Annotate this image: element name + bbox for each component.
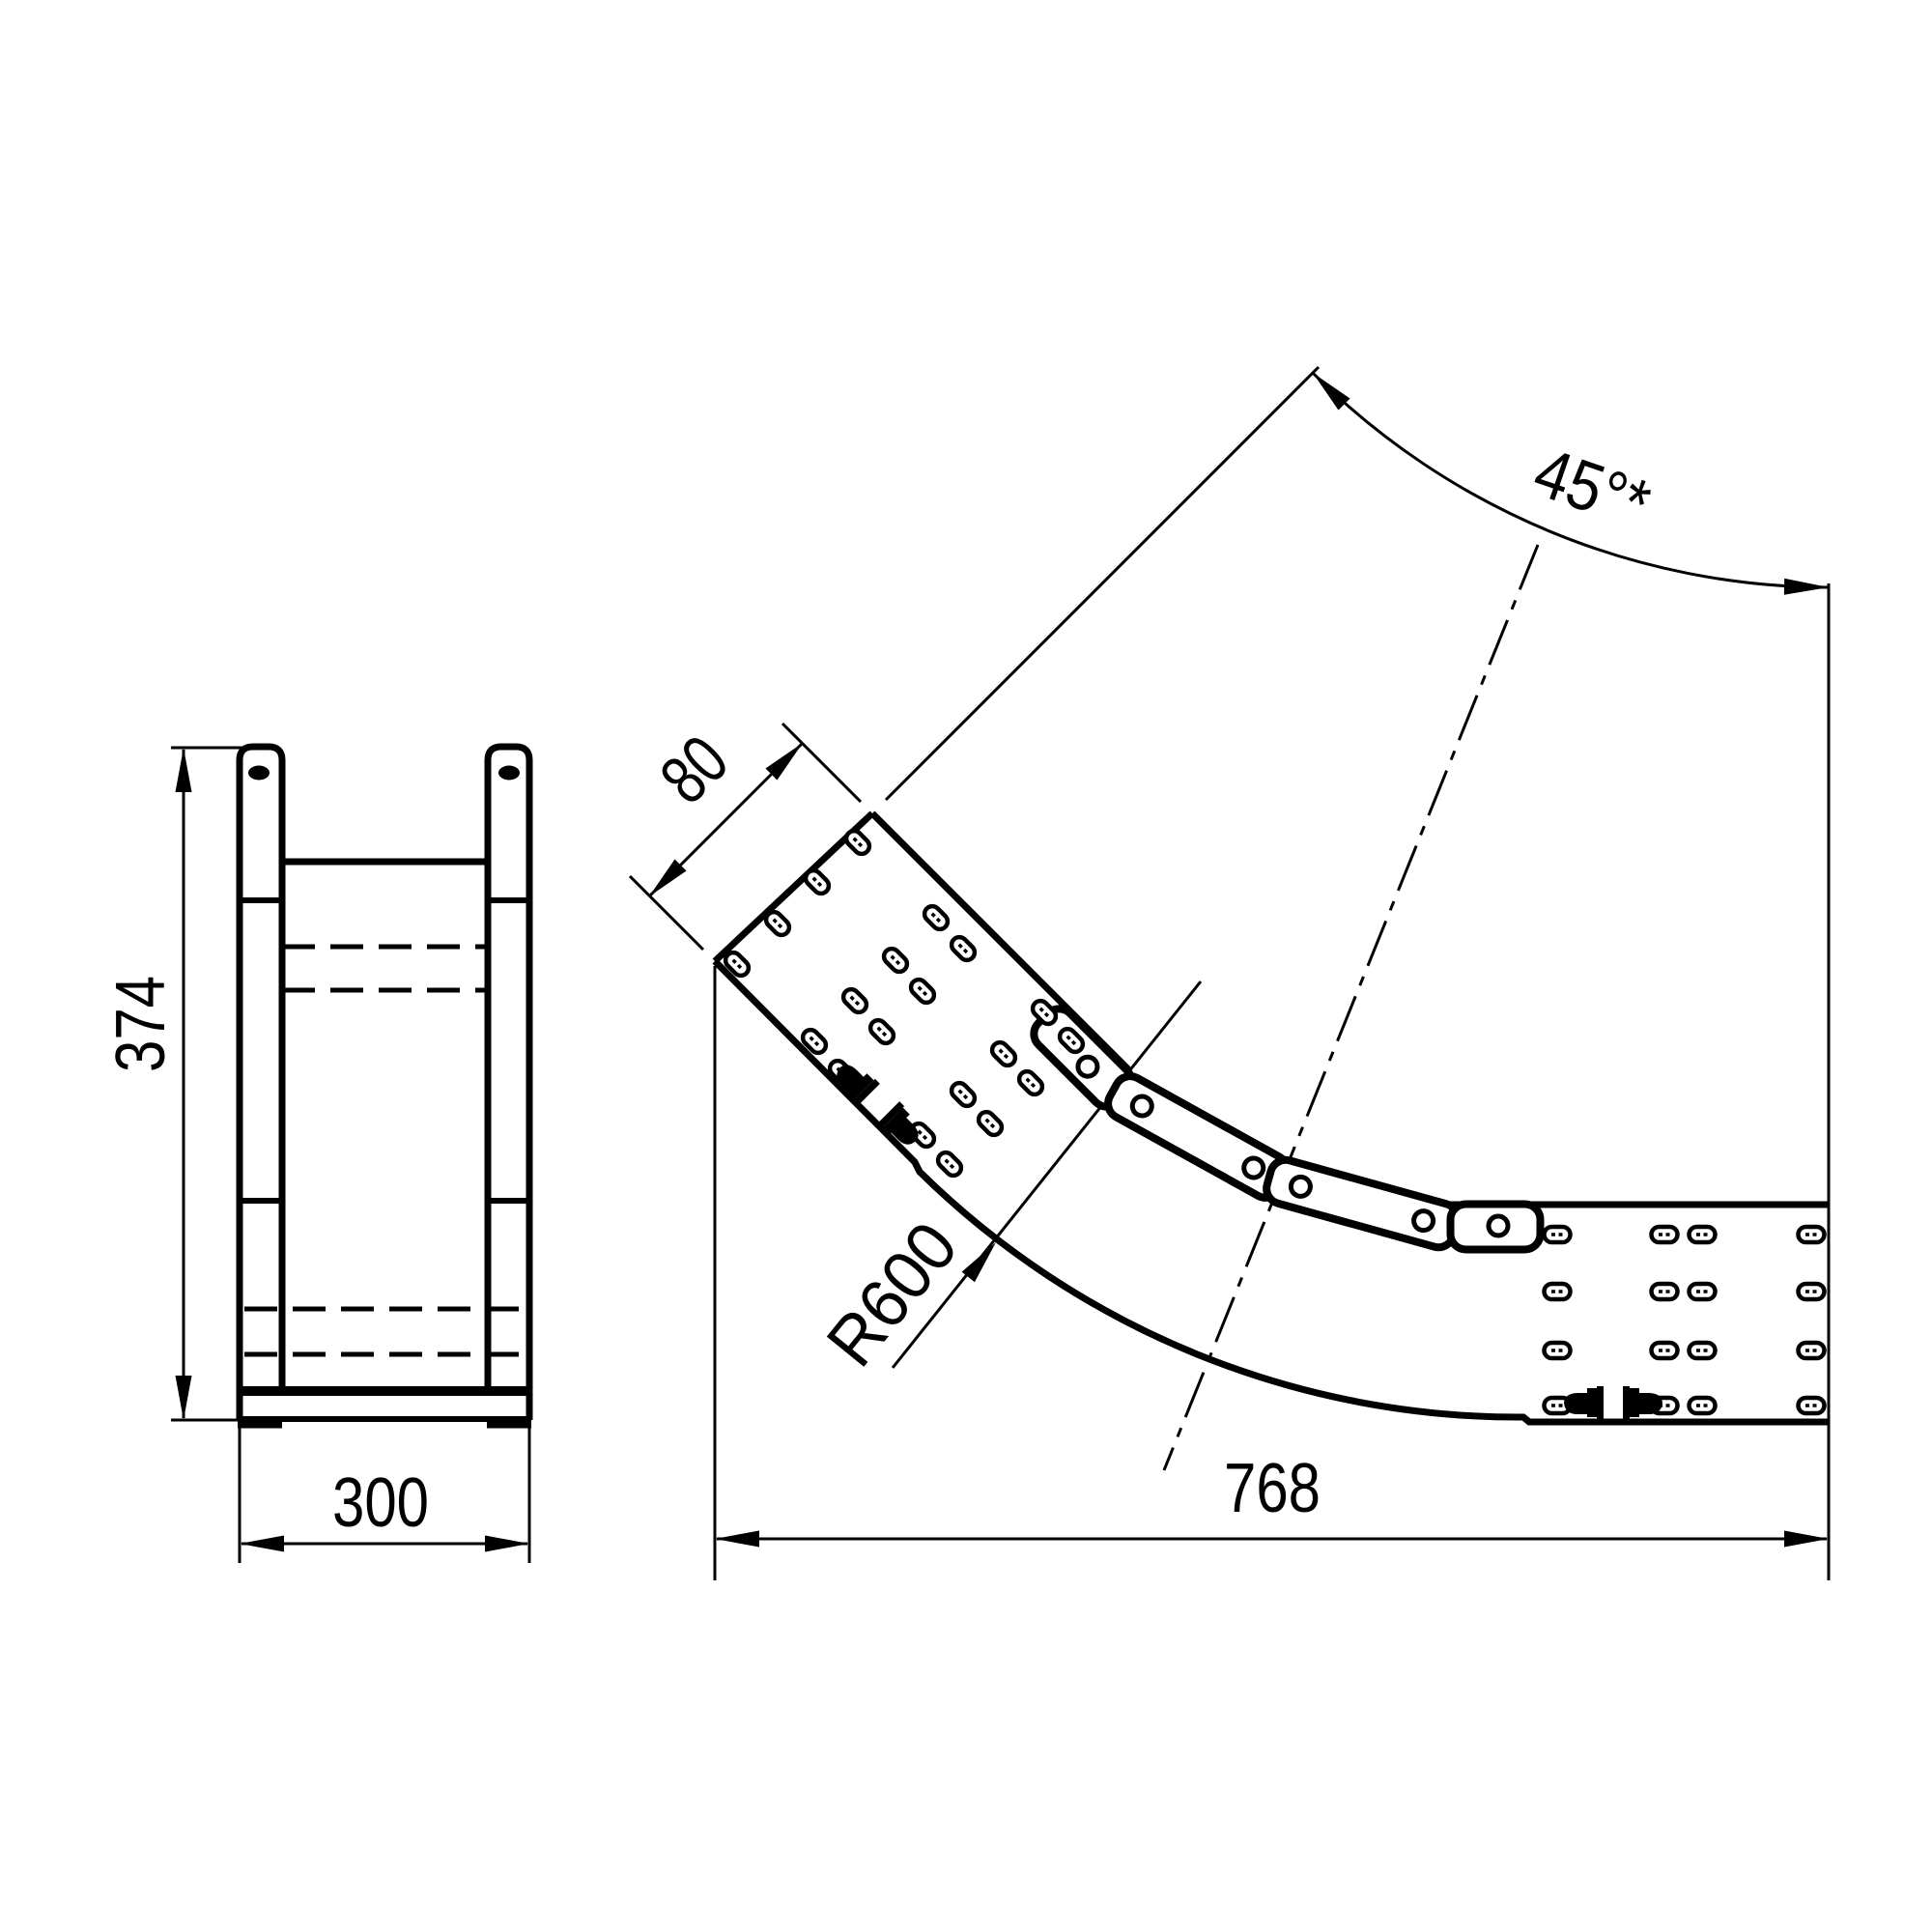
hinge-plates xyxy=(1028,1003,1541,1251)
slot-hole xyxy=(935,1150,964,1179)
front-view: 374 300 xyxy=(102,747,531,1563)
extension-line xyxy=(630,876,703,950)
slot-hole xyxy=(843,828,872,857)
dim-flange-label: 80 xyxy=(646,722,743,818)
dimension-angle: 45°* xyxy=(886,367,1829,1580)
slot-hole xyxy=(908,977,937,1006)
slot-hole xyxy=(922,903,951,932)
arrowhead-icon xyxy=(643,859,687,902)
slot-hole xyxy=(1799,1284,1825,1299)
slot-hole xyxy=(1016,1068,1045,1097)
arrowhead-icon xyxy=(715,1531,759,1548)
slot-hole xyxy=(763,909,792,938)
arrowhead-icon xyxy=(1784,579,1829,596)
dimension-flange-width: 80 xyxy=(630,722,861,950)
slot-hole xyxy=(1545,1284,1571,1299)
dim-radius-label: R600 xyxy=(812,1208,973,1381)
arrowhead-icon xyxy=(765,737,809,781)
slot-hole xyxy=(1690,1284,1716,1299)
slot-hole xyxy=(949,934,978,963)
clamp-fastener-icon xyxy=(1564,1386,1604,1419)
rail-hole-icon xyxy=(498,766,520,781)
arrowhead-icon xyxy=(1784,1531,1829,1548)
slot-hole xyxy=(1690,1227,1716,1242)
dimension-radius: R600 xyxy=(812,1208,973,1381)
slot-hole xyxy=(1799,1227,1825,1242)
hinge-plate xyxy=(1451,1205,1541,1250)
slot-hole xyxy=(976,1109,1005,1138)
dim-span-label: 768 xyxy=(1224,1450,1321,1527)
dim-width-label: 300 xyxy=(332,1464,429,1542)
slot-hole xyxy=(1545,1227,1571,1242)
slot-hole xyxy=(1690,1343,1716,1358)
slot-hole xyxy=(1652,1227,1678,1242)
slot-hole xyxy=(803,867,832,896)
slot-hole xyxy=(1799,1398,1825,1413)
slot-hole xyxy=(949,1080,978,1109)
slot-hole xyxy=(867,1017,896,1046)
technical-drawing: 374 300 45°* R600 76 xyxy=(0,0,1932,1932)
slot-hole xyxy=(1690,1398,1716,1413)
slot-hole xyxy=(1799,1343,1825,1358)
slot-hole xyxy=(1652,1343,1678,1358)
slot-hole xyxy=(840,986,869,1015)
bend-bisector-centerline xyxy=(1164,545,1538,1470)
arrowhead-icon xyxy=(176,1376,192,1420)
slot-hole xyxy=(1545,1343,1571,1358)
hinge-plate xyxy=(1263,1156,1461,1251)
slot-hole xyxy=(1652,1284,1678,1299)
drawing-canvas: 374 300 45°* R600 76 xyxy=(0,0,1932,1932)
front-left-rail xyxy=(240,747,282,1420)
arrowhead-icon xyxy=(485,1536,529,1552)
rail-hole-icon xyxy=(248,766,270,781)
dimension-height: 374 xyxy=(102,748,243,1420)
front-right-rail xyxy=(488,747,529,1420)
dim-angle-label: 45°* xyxy=(1524,434,1660,545)
side-view: 45°* R600 768 80 xyxy=(176,367,1830,1580)
extension-line xyxy=(886,367,1319,800)
slot-hole xyxy=(989,1039,1018,1068)
arrowhead-icon xyxy=(1307,367,1350,411)
dim-height-label: 374 xyxy=(102,976,180,1072)
arrowhead-icon xyxy=(240,1536,284,1552)
slot-hole xyxy=(881,946,910,975)
extension-line xyxy=(782,724,861,802)
arrowhead-icon xyxy=(176,748,192,792)
